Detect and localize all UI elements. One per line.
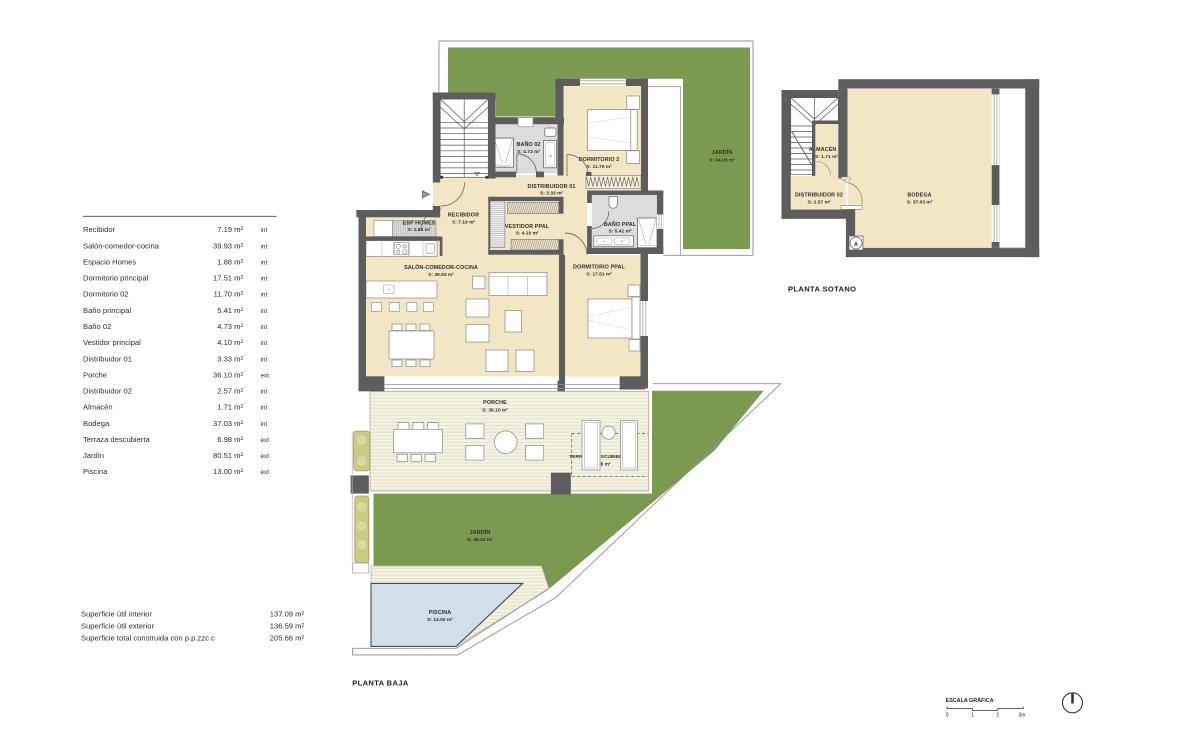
svg-text:PLANTA SOTANO: PLANTA SOTANO bbox=[788, 285, 856, 294]
svg-text:Almacén: Almacén bbox=[83, 403, 113, 412]
svg-text:136.59 m²: 136.59 m² bbox=[270, 621, 305, 630]
svg-text:5.41 m²: 5.41 m² bbox=[217, 306, 243, 315]
svg-text:S: 1.71 m²: S: 1.71 m² bbox=[815, 154, 838, 160]
svg-text:S: 3.33 m²: S: 3.33 m² bbox=[540, 191, 563, 197]
svg-text:S: 46.22 m²: S: 46.22 m² bbox=[467, 537, 493, 543]
svg-text:S: 17.51 m²: S: 17.51 m² bbox=[586, 272, 612, 278]
svg-text:S: 13.00 m²: S: 13.00 m² bbox=[427, 617, 453, 623]
svg-text:3.33 m²: 3.33 m² bbox=[217, 354, 243, 363]
svg-text:205.66 m²: 205.66 m² bbox=[270, 633, 305, 642]
svg-text:Baño principal: Baño principal bbox=[83, 306, 131, 315]
svg-text:80.51 m²: 80.51 m² bbox=[213, 451, 243, 460]
svg-text:JARDÍN: JARDÍN bbox=[712, 148, 733, 156]
svg-text:int: int bbox=[261, 356, 268, 363]
svg-text:Superficie total construida co: Superficie total construida con p.p.zzc.… bbox=[81, 633, 215, 642]
svg-text:Terraza descubierta: Terraza descubierta bbox=[83, 435, 150, 444]
svg-text:17.51 m²: 17.51 m² bbox=[213, 274, 243, 283]
svg-text:int: int bbox=[261, 324, 268, 331]
svg-text:S: 36.10 m²: S: 36.10 m² bbox=[482, 408, 508, 414]
svg-text:1.71 m²: 1.71 m² bbox=[217, 403, 243, 412]
svg-text:Dormitorio 02: Dormitorio 02 bbox=[83, 290, 129, 299]
svg-text:1.88 m²: 1.88 m² bbox=[217, 258, 243, 267]
svg-text:SALÓN-COMEDOR-COCINA: SALÓN-COMEDOR-COCINA bbox=[404, 263, 478, 271]
svg-text:Superficie útil interior: Superficie útil interior bbox=[81, 609, 152, 618]
svg-text:DORMITORIO PPAL: DORMITORIO PPAL bbox=[573, 265, 626, 271]
svg-text:ext: ext bbox=[261, 372, 270, 379]
svg-text:S: 39.93 m²: S: 39.93 m² bbox=[428, 272, 454, 278]
svg-text:BODEGA: BODEGA bbox=[907, 193, 931, 199]
svg-text:DORMITORIO 2: DORMITORIO 2 bbox=[579, 157, 620, 163]
svg-text:RECIBIDOR: RECIBIDOR bbox=[448, 213, 479, 219]
svg-text:int: int bbox=[261, 276, 268, 283]
svg-text:Recibidor: Recibidor bbox=[83, 225, 116, 234]
svg-text:7.19 m²: 7.19 m² bbox=[217, 225, 243, 234]
svg-text:JARDÍN: JARDÍN bbox=[470, 528, 491, 536]
svg-text:2.57 m²: 2.57 m² bbox=[217, 387, 243, 396]
svg-text:int: int bbox=[261, 260, 268, 267]
svg-text:S: 2.57 m²: S: 2.57 m² bbox=[807, 200, 830, 206]
svg-text:2: 2 bbox=[996, 713, 999, 719]
svg-text:VESTIDOR PPAL: VESTIDOR PPAL bbox=[505, 224, 550, 230]
svg-text:int: int bbox=[261, 243, 268, 250]
svg-text:int: int bbox=[261, 340, 268, 347]
svg-text:6.98 m²: 6.98 m² bbox=[217, 435, 243, 444]
svg-text:BAÑO PPAL: BAÑO PPAL bbox=[604, 221, 637, 228]
svg-text:S: 34.29 m²: S: 34.29 m² bbox=[709, 158, 735, 164]
svg-text:1: 1 bbox=[971, 713, 974, 719]
svg-text:int: int bbox=[261, 389, 268, 396]
svg-text:S: 11.70 m²: S: 11.70 m² bbox=[586, 164, 612, 170]
svg-text:0: 0 bbox=[946, 713, 949, 719]
svg-text:int: int bbox=[261, 421, 268, 428]
svg-text:ext: ext bbox=[261, 453, 270, 460]
svg-text:BAÑO 02: BAÑO 02 bbox=[516, 141, 540, 148]
svg-text:S: 1.88 m²: S: 1.88 m² bbox=[407, 227, 430, 233]
svg-text:39.93 m²: 39.93 m² bbox=[213, 241, 243, 250]
svg-text:Bodega: Bodega bbox=[83, 419, 110, 428]
svg-text:36.10 m²: 36.10 m² bbox=[213, 370, 243, 379]
svg-text:11.70 m²: 11.70 m² bbox=[214, 290, 244, 299]
svg-text:Distribuidor 02: Distribuidor 02 bbox=[83, 387, 132, 396]
svg-text:37.03 m²: 37.03 m² bbox=[213, 419, 243, 428]
svg-text:137.09 m²: 137.09 m² bbox=[270, 609, 305, 618]
svg-text:ext: ext bbox=[261, 437, 270, 444]
svg-text:A: A bbox=[854, 242, 858, 248]
svg-text:Espacio Homes: Espacio Homes bbox=[83, 258, 136, 267]
svg-text:Distribuidor 01: Distribuidor 01 bbox=[83, 354, 132, 363]
svg-text:3m: 3m bbox=[1019, 713, 1026, 719]
svg-text:Superficie útil exterior: Superficie útil exterior bbox=[81, 621, 154, 630]
svg-text:Porche: Porche bbox=[83, 370, 107, 379]
svg-text:PLANTA BAJA: PLANTA BAJA bbox=[352, 679, 409, 688]
svg-text:Dormitorio principal: Dormitorio principal bbox=[83, 274, 149, 283]
svg-text:S: 5.41 m²: S: 5.41 m² bbox=[608, 229, 631, 235]
svg-text:ESCALA GRÁFICA: ESCALA GRÁFICA bbox=[946, 697, 994, 704]
svg-text:Jardín: Jardín bbox=[83, 451, 104, 460]
svg-text:DISTRIBUIDOR 01: DISTRIBUIDOR 01 bbox=[528, 184, 576, 190]
svg-text:Piscina: Piscina bbox=[83, 467, 108, 476]
svg-text:DISTRIBUIDOR 02: DISTRIBUIDOR 02 bbox=[795, 193, 843, 199]
svg-text:PISCINA: PISCINA bbox=[429, 610, 452, 616]
svg-text:ext: ext bbox=[261, 469, 270, 476]
svg-text:PORCHE: PORCHE bbox=[483, 400, 507, 406]
svg-text:S: 37.03 m²: S: 37.03 m² bbox=[907, 200, 933, 206]
svg-text:Salón-comedor-cocina: Salón-comedor-cocina bbox=[83, 241, 160, 250]
svg-text:S: 4.10 m²: S: 4.10 m² bbox=[515, 231, 538, 237]
svg-text:int: int bbox=[261, 292, 268, 299]
svg-text:ESP HOMES: ESP HOMES bbox=[403, 221, 436, 227]
svg-text:int: int bbox=[261, 405, 268, 412]
svg-text:Baño 02: Baño 02 bbox=[83, 322, 111, 331]
svg-text:4.73 m²: 4.73 m² bbox=[217, 322, 243, 331]
svg-text:int: int bbox=[261, 227, 268, 234]
svg-text:4.10 m²: 4.10 m² bbox=[217, 338, 243, 347]
svg-text:int: int bbox=[261, 308, 268, 315]
svg-text:S: 7.19 m²: S: 7.19 m² bbox=[452, 220, 475, 226]
svg-text:Vestidor principal: Vestidor principal bbox=[83, 338, 141, 347]
svg-text:13.00 m²: 13.00 m² bbox=[213, 467, 243, 476]
